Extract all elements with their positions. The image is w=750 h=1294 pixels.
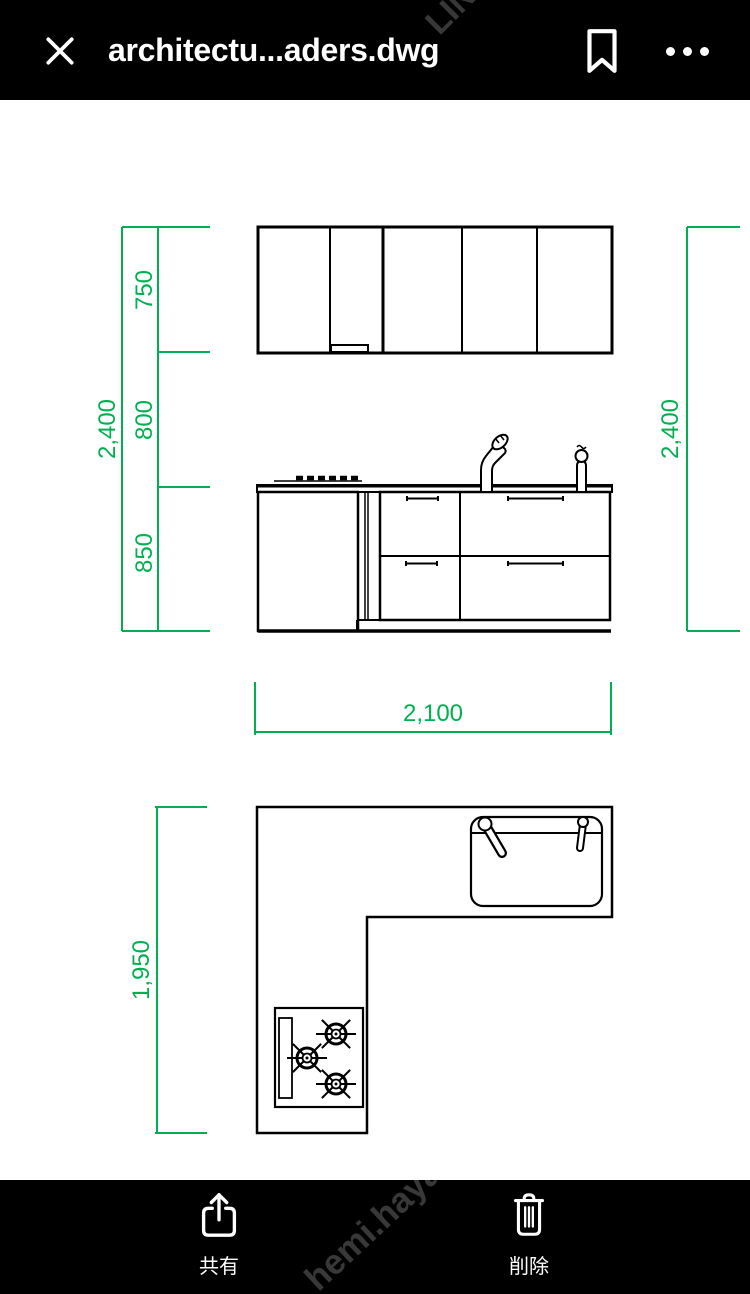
cad-drawing	[0, 100, 750, 1180]
burner	[316, 1020, 356, 1048]
top-bar: LIN architectu...aders.dwg	[0, 0, 750, 100]
drawer-handle	[407, 496, 438, 501]
dim-label-right-total: 2,400	[657, 399, 685, 459]
delete-button[interactable]: 削除	[505, 1190, 553, 1279]
share-button[interactable]: 共有	[195, 1190, 243, 1279]
share-icon	[195, 1190, 243, 1243]
trash-icon	[505, 1190, 553, 1243]
share-label: 共有	[199, 1250, 239, 1279]
delete-label: 削除	[509, 1250, 549, 1279]
bookmark-button[interactable]	[582, 27, 622, 75]
sink-faucet-lever	[479, 818, 503, 854]
drawer-handle	[508, 561, 563, 566]
more-options-button[interactable]	[656, 38, 718, 64]
cooktop-elevation	[274, 478, 362, 481]
dimension-lines	[122, 227, 740, 1133]
file-title: architectu...aders.dwg	[108, 0, 439, 100]
drawer-handle	[508, 496, 563, 501]
burner	[316, 1070, 356, 1098]
cooktop-plan	[275, 1008, 363, 1107]
bookmark-icon	[584, 63, 620, 78]
more-icon	[666, 47, 675, 56]
wall-cabinet	[258, 227, 612, 353]
watermark-bottom: hemi.haya	[297, 1180, 449, 1294]
drawer-handle	[406, 561, 437, 566]
bottom-bar: hemi.haya 共有 削除	[0, 1180, 750, 1294]
elevation-view	[257, 227, 612, 631]
dim-label-800: 800	[131, 400, 159, 440]
dim-label-850: 850	[131, 533, 159, 573]
burner	[287, 1044, 327, 1072]
close-button[interactable]	[38, 30, 82, 74]
dim-label-750: 750	[131, 270, 159, 310]
dim-label-2100: 2,100	[403, 700, 463, 728]
close-icon	[42, 57, 78, 72]
faucet-tall	[481, 432, 510, 492]
dim-label-left-total: 2,400	[94, 399, 122, 459]
base-cabinet	[258, 492, 611, 631]
sink	[471, 817, 602, 906]
cad-viewport[interactable]: 2,400 750 800 850 2,400 2,100 1,950	[0, 100, 750, 1180]
faucet-small	[576, 446, 588, 493]
counter-outline	[257, 807, 612, 1133]
dim-label-1950: 1,950	[128, 940, 156, 1000]
plan-view	[257, 807, 612, 1133]
